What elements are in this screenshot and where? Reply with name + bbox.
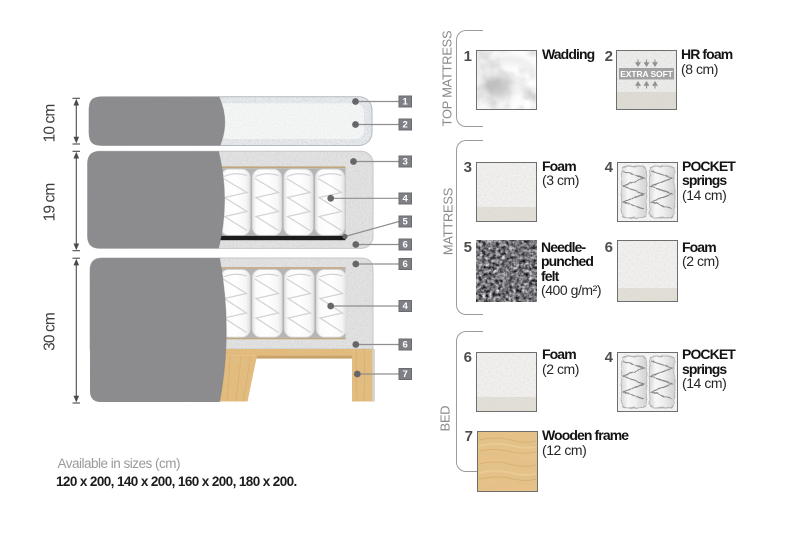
svg-text:6: 6 xyxy=(403,240,408,251)
svg-text:7: 7 xyxy=(403,369,408,380)
svg-text:5: 5 xyxy=(403,217,409,228)
svg-text:10 cm: 10 cm xyxy=(42,105,59,143)
svg-text:6: 6 xyxy=(403,259,408,270)
svg-text:1: 1 xyxy=(403,97,409,108)
svg-text:6: 6 xyxy=(403,340,408,351)
svg-text:EXTRA SOFT: EXTRA SOFT xyxy=(620,69,673,79)
svg-text:3: 3 xyxy=(403,157,408,168)
svg-text:30 cm: 30 cm xyxy=(42,313,59,351)
svg-text:4: 4 xyxy=(403,194,409,205)
svg-text:19 cm: 19 cm xyxy=(42,184,59,222)
svg-text:2: 2 xyxy=(403,120,408,131)
svg-text:4: 4 xyxy=(403,301,409,312)
